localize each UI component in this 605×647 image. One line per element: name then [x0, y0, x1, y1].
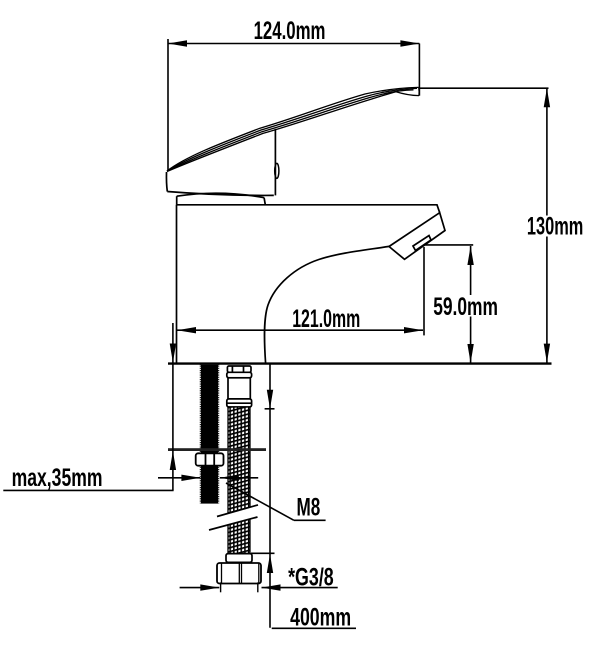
svg-text:59.0mm: 59.0mm: [433, 293, 498, 321]
svg-text:124.0mm: 124.0mm: [254, 17, 326, 45]
svg-text:M8: M8: [297, 494, 321, 522]
svg-text:130mm: 130mm: [527, 213, 583, 241]
svg-text:*G3/8: *G3/8: [288, 564, 334, 592]
svg-text:121.0mm: 121.0mm: [292, 305, 360, 333]
svg-text:400mm: 400mm: [290, 603, 351, 631]
svg-text:max,35mm: max,35mm: [12, 464, 103, 492]
